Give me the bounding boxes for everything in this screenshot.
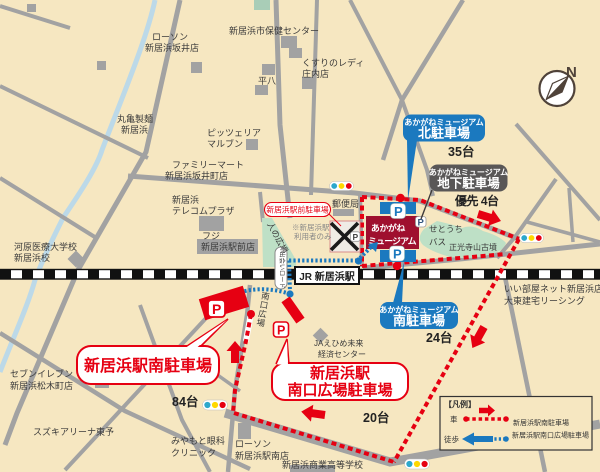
svg-text:新居浜駅南店: 新居浜駅南店 bbox=[235, 450, 289, 461]
svg-text:利用者のみ: 利用者のみ bbox=[294, 231, 332, 241]
svg-text:新居浜商業高等学校: 新居浜商業高等学校 bbox=[282, 459, 363, 470]
svg-text:徒歩: 徒歩 bbox=[444, 434, 459, 444]
svg-text:庄内店: 庄内店 bbox=[302, 68, 329, 79]
svg-text:南駐車場: 南駐車場 bbox=[393, 313, 445, 328]
svg-text:フジ: フジ bbox=[202, 231, 220, 241]
svg-text:P: P bbox=[353, 232, 359, 242]
svg-text:平八: 平八 bbox=[258, 76, 276, 86]
svg-text:JAえひめ未来: JAえひめ未来 bbox=[314, 338, 363, 348]
svg-text:地下駐車場: 地下駐車場 bbox=[437, 176, 500, 191]
svg-text:クリニック: クリニック bbox=[171, 448, 216, 458]
svg-text:N: N bbox=[566, 64, 577, 81]
svg-text:北駐車場: 北駐車場 bbox=[418, 126, 470, 141]
svg-text:新居浜: 新居浜 bbox=[121, 124, 148, 135]
svg-text:新居浜駅南口広場駐車場: 新居浜駅南口広場駐車場 bbox=[512, 431, 589, 440]
svg-text:バス: バス bbox=[429, 237, 446, 247]
svg-text:ファミリーマート: ファミリーマート bbox=[172, 160, 244, 170]
svg-text:南口広場駐車場: 南口広場駐車場 bbox=[287, 381, 392, 399]
svg-text:20台: 20台 bbox=[363, 410, 389, 425]
svg-text:せとうち: せとうち bbox=[429, 224, 463, 234]
svg-text:新居浜松木町店: 新居浜松木町店 bbox=[10, 380, 73, 391]
svg-text:正光寺山古墳: 正光寺山古墳 bbox=[449, 242, 497, 252]
svg-text:いい部屋ネット新居浜店: いい部屋ネット新居浜店 bbox=[504, 283, 600, 294]
svg-text:新居浜駅前店: 新居浜駅前店 bbox=[201, 241, 255, 252]
svg-text:ローソン: ローソン bbox=[152, 32, 188, 42]
svg-text:P: P bbox=[393, 247, 402, 262]
svg-text:※新居浜駅: ※新居浜駅 bbox=[292, 222, 330, 232]
svg-text:新居浜坂井町店: 新居浜坂井町店 bbox=[165, 170, 228, 181]
svg-text:丸亀製麺: 丸亀製麺 bbox=[117, 113, 153, 124]
svg-text:新居浜: 新居浜 bbox=[172, 194, 199, 205]
svg-text:新居浜駅前駐車場: 新居浜駅前駐車場 bbox=[266, 205, 329, 215]
svg-text:出会いロード: 出会いロード bbox=[278, 252, 286, 289]
svg-text:大東建宅リーシング: 大東建宅リーシング bbox=[504, 295, 585, 306]
svg-text:新居浜坂井店: 新居浜坂井店 bbox=[145, 42, 199, 53]
svg-text:郵便局: 郵便局 bbox=[332, 198, 359, 209]
svg-text:JR 新居浜駅: JR 新居浜駅 bbox=[299, 270, 356, 283]
svg-text:35台: 35台 bbox=[448, 144, 474, 159]
svg-text:84台: 84台 bbox=[172, 394, 198, 409]
svg-text:新居浜駅南駐車場: 新居浜駅南駐車場 bbox=[84, 356, 212, 375]
svg-text:くすりのレディ: くすりのレディ bbox=[302, 57, 364, 68]
svg-text:【凡例】: 【凡例】 bbox=[444, 399, 476, 409]
svg-text:みやもと眼科: みやもと眼科 bbox=[171, 435, 225, 446]
svg-text:新居浜駅南駐車場: 新居浜駅南駐車場 bbox=[513, 418, 569, 427]
svg-text:P: P bbox=[418, 218, 425, 229]
svg-text:優先 4台: 優先 4台 bbox=[454, 193, 499, 208]
svg-text:テレコムプラザ: テレコムプラザ bbox=[172, 206, 234, 216]
svg-text:ピッツェリア: ピッツェリア bbox=[207, 128, 261, 138]
svg-text:24台: 24台 bbox=[426, 330, 452, 345]
svg-text:新居浜市保健センター: 新居浜市保健センター bbox=[229, 25, 319, 36]
svg-text:P: P bbox=[394, 204, 403, 219]
svg-text:新居浜駅: 新居浜駅 bbox=[310, 364, 371, 382]
svg-text:セブンイレブン: セブンイレブン bbox=[10, 368, 73, 379]
svg-text:ローソン: ローソン bbox=[235, 439, 271, 449]
svg-text:あかがねミュージアム: あかがねミュージアム bbox=[429, 167, 508, 177]
svg-text:あかがね: あかがね bbox=[371, 222, 405, 233]
svg-text:スズキアリーナ東予: スズキアリーナ東予 bbox=[33, 426, 114, 437]
svg-text:新居浜校: 新居浜校 bbox=[14, 252, 50, 263]
svg-text:マルブン: マルブン bbox=[207, 138, 243, 149]
svg-text:P: P bbox=[277, 324, 285, 338]
svg-text:経済センター: 経済センター bbox=[318, 349, 366, 359]
svg-text:河原医療大学校: 河原医療大学校 bbox=[14, 241, 77, 252]
svg-text:P: P bbox=[212, 301, 221, 317]
svg-text:車: 車 bbox=[450, 414, 458, 424]
